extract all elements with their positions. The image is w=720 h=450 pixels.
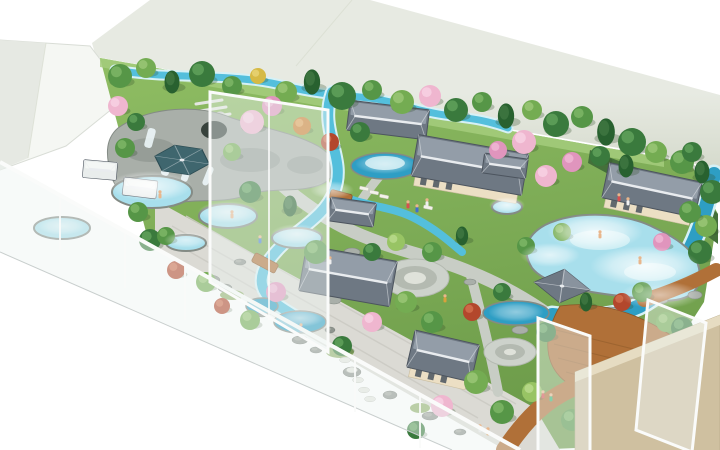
glass-pane-front — [538, 318, 590, 450]
steam-puff — [355, 154, 415, 174]
edge-rock — [512, 326, 528, 334]
steam-puff — [488, 302, 544, 322]
person-figure — [406, 200, 409, 208]
edge-rock — [464, 279, 476, 285]
person-figure — [598, 230, 601, 238]
steam-puff — [108, 171, 192, 201]
person-figure — [425, 198, 428, 206]
steam-puff — [489, 197, 525, 213]
person-figure — [617, 193, 620, 201]
hot-spring-garden-rendering — [0, 0, 720, 450]
person-figure — [626, 197, 629, 205]
circular-plaza-small — [484, 338, 536, 366]
person-figure — [443, 294, 446, 302]
pavilion-roof — [82, 160, 117, 181]
person-figure — [638, 256, 641, 264]
person-figure — [415, 204, 418, 212]
steam-puff — [590, 246, 700, 286]
steam-puff — [164, 232, 208, 248]
rendering-canvas — [0, 0, 720, 450]
steam-puff — [520, 243, 580, 267]
person-figure — [158, 190, 161, 198]
